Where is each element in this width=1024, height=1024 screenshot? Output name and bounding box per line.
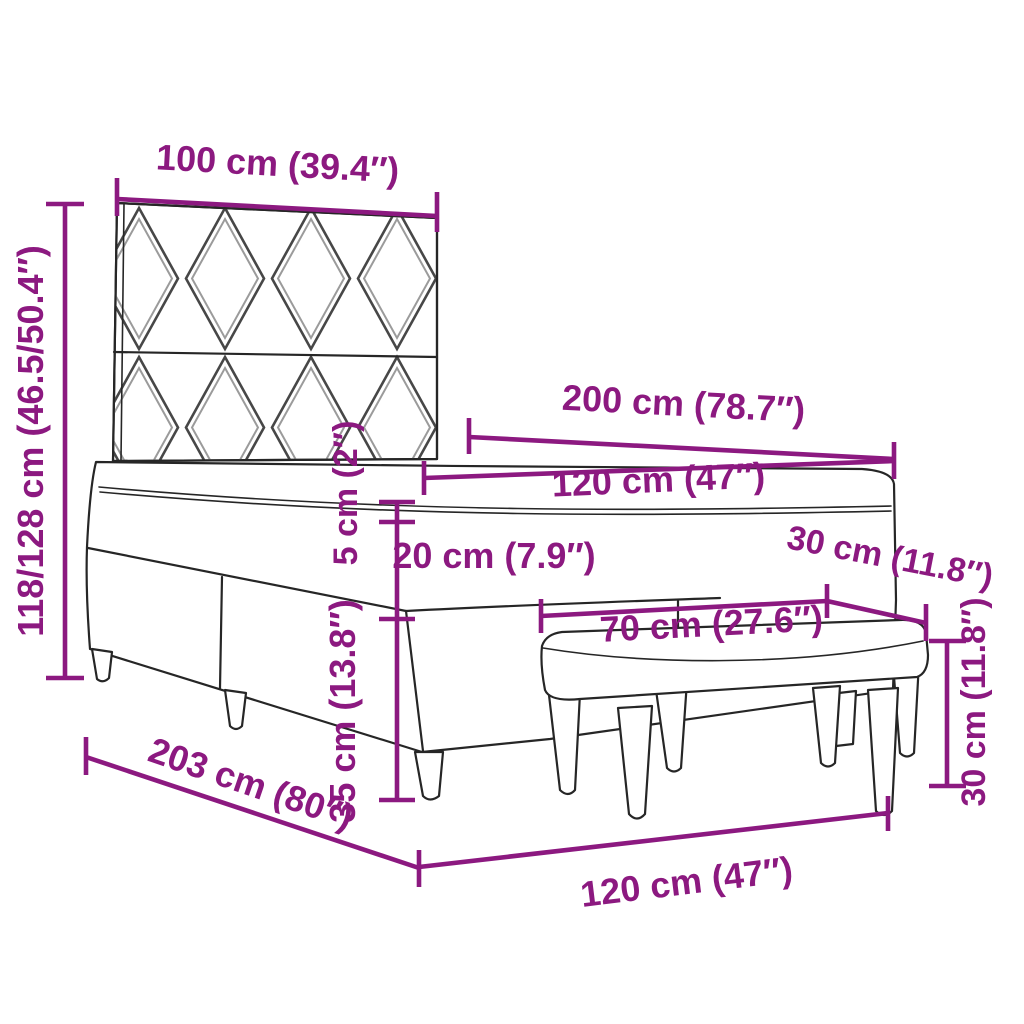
- bench-leg: [618, 706, 652, 819]
- dim-mattress-length-label: 200 cm (78.7″): [561, 377, 806, 431]
- dim-bench-height: 30 cm (11.8″): [929, 597, 993, 806]
- dimension-line: [469, 437, 894, 459]
- dim-bed-length: 203 cm (80″): [86, 729, 419, 887]
- bed-leg: [415, 752, 443, 800]
- bed-leg: [225, 690, 246, 729]
- dim-total-height: 118/128 cm (46.5/50.4″): [10, 204, 84, 678]
- bench-leg: [868, 688, 898, 815]
- dim-bed-width: 120 cm (47″): [419, 796, 888, 915]
- dim-headboard-width-label: 100 cm (39.4″): [155, 136, 400, 191]
- dimension-diagram: 100 cm (39.4″) 118/128 cm (46.5/50.4″) 2…: [0, 0, 1024, 1024]
- dim-topper-height-label: 5 cm (2″): [327, 421, 365, 566]
- bench-leg: [813, 686, 840, 767]
- bed-drawing: [87, 195, 928, 819]
- headboard: [100, 195, 450, 470]
- bed-leg: [92, 649, 112, 681]
- dim-bed-width-label: 120 cm (47″): [578, 848, 795, 915]
- bench-leg: [549, 693, 580, 794]
- dimension-line: [419, 813, 888, 867]
- diagram-canvas: 100 cm (39.4″) 118/128 cm (46.5/50.4″) 2…: [0, 0, 1024, 1024]
- dim-mattress-height-label: 20 cm (7.9″): [392, 535, 595, 576]
- dim-bench-height-label: 30 cm (11.8″): [955, 597, 993, 806]
- dim-total-height-label: 118/128 cm (46.5/50.4″): [10, 245, 51, 637]
- headboard-pattern: [100, 195, 450, 470]
